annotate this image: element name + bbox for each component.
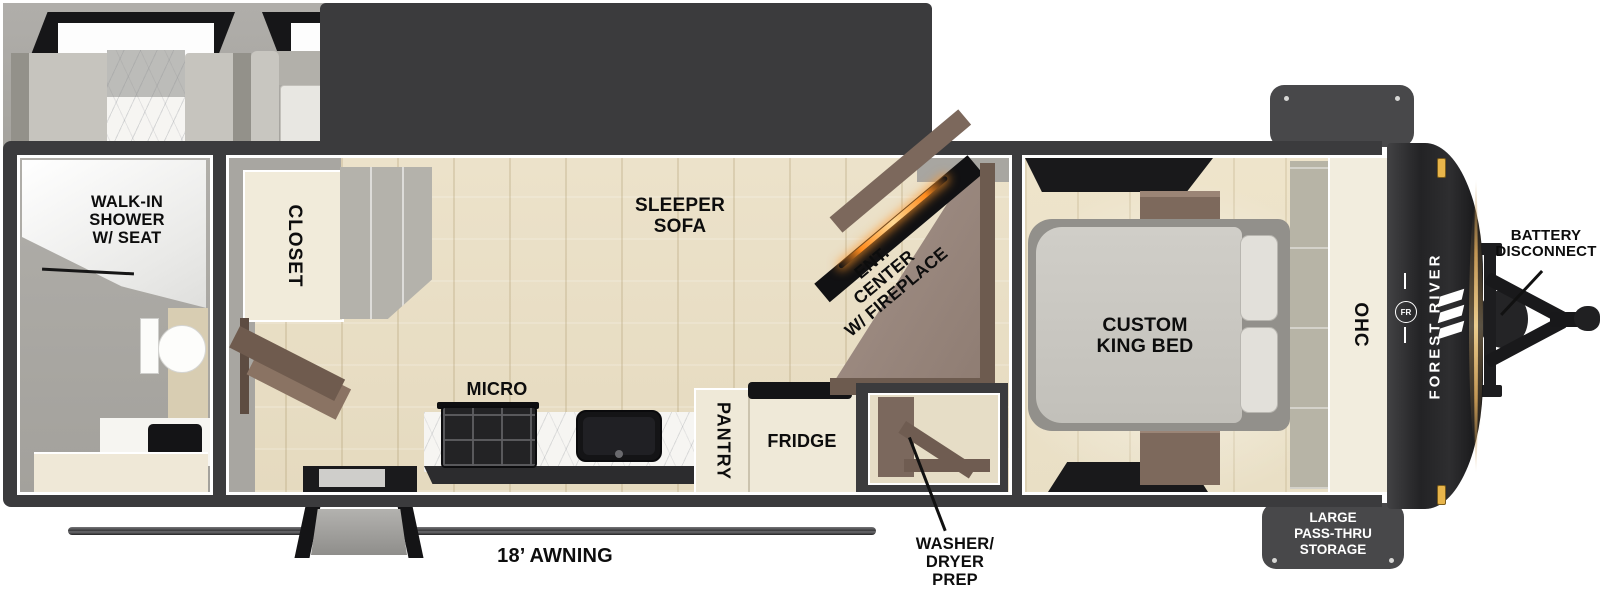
washer-closet-interior	[868, 393, 1000, 485]
rivet	[1284, 96, 1289, 101]
kitchen-sink	[576, 410, 662, 462]
brand-name: FOREST RIVER	[1427, 176, 1444, 476]
rivet	[1272, 558, 1277, 563]
micro-label: MICRO	[447, 380, 547, 399]
table-shade	[107, 50, 185, 97]
window-icon	[1025, 158, 1213, 192]
rv-floorplan: 18’ AWNING LARGE PASS-THRU STORAGE WALK-…	[0, 0, 1600, 592]
faucet-icon	[615, 450, 623, 458]
bedroom: CUSTOM KING BED OHC	[1022, 155, 1390, 495]
entry-door-opening	[303, 466, 417, 492]
brand-dash	[1404, 327, 1406, 343]
entertainment-center: ENT. CENTER W/ FIREPLACE	[830, 163, 995, 395]
toilet-bowl	[158, 325, 206, 373]
clearance-light-icon	[1437, 158, 1446, 178]
brand-dash	[1404, 273, 1406, 289]
toilet-tank	[140, 318, 159, 374]
awning-label: 18’ AWNING	[440, 546, 670, 568]
vanity-cabinet	[34, 452, 208, 492]
bedroom-wardrobe	[1290, 161, 1328, 489]
cap-gold-accent	[1474, 179, 1478, 473]
wardrobe-cabinets	[340, 167, 432, 319]
ent-center-side	[980, 163, 995, 395]
slideout-wall	[320, 3, 932, 153]
closet: CLOSET	[243, 170, 344, 322]
entry-door-panel	[319, 469, 385, 487]
washer-dryer-label: WASHER/ DRYER PREP	[903, 536, 1007, 589]
closet-label: CLOSET	[283, 204, 305, 287]
clearance-light-icon	[1437, 485, 1446, 505]
overhead-cabinet: OHC	[1328, 158, 1389, 492]
rivet	[1395, 96, 1400, 101]
front-compartment-box	[1270, 85, 1414, 147]
hitch-coupler	[1574, 306, 1600, 331]
nightstand-bottom	[1140, 427, 1220, 485]
pantry-label: PANTRY	[713, 402, 734, 480]
step-platform	[311, 509, 407, 555]
bathroom: WALK-IN SHOWER W/ SEAT	[17, 155, 213, 495]
hitch-tab	[1480, 385, 1502, 397]
corner-desk	[240, 318, 362, 430]
pantry-fridge-block: PANTRY FRIDGE	[694, 388, 858, 494]
pillow	[1240, 235, 1278, 321]
front-cap: FOREST RIVER FR	[1387, 143, 1483, 509]
brand-logo-icon: FR	[1395, 301, 1417, 323]
cabinet-seam	[402, 167, 404, 319]
sleeper-sofa-label: SLEEPER SOFA	[612, 196, 748, 237]
king-bed-label: CUSTOM KING BED	[1040, 315, 1250, 357]
entry-step	[298, 506, 420, 558]
walk-in-shower-label: WALK-IN SHOWER W/ SEAT	[48, 194, 206, 247]
pass-thru-storage-label: LARGE PASS-THRU STORAGE	[1262, 510, 1404, 558]
cabinet-seam	[370, 167, 372, 319]
battery-disconnect-label: BATTERY DISCONNECT	[1492, 228, 1600, 260]
rivet	[1389, 558, 1394, 563]
ohc-label: OHC	[1349, 302, 1371, 347]
stove-top	[441, 406, 537, 468]
pass-thru-storage-box: LARGE PASS-THRU STORAGE	[1262, 503, 1404, 569]
awning-bar	[68, 527, 876, 535]
kitchen-counter-edge	[424, 466, 706, 484]
washer-dryer-closet	[856, 383, 1008, 492]
cabinet-divider	[748, 390, 750, 492]
fridge-label: FRIDGE	[752, 432, 852, 451]
